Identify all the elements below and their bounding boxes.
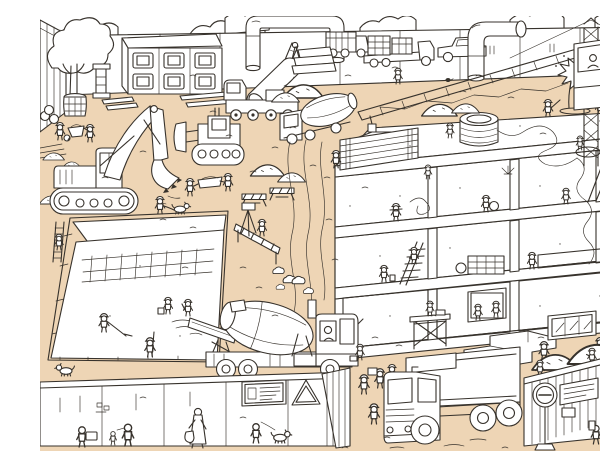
site-office-container bbox=[122, 34, 230, 94]
backpack bbox=[589, 421, 595, 430]
notice-board bbox=[242, 380, 286, 406]
mixer-cab bbox=[316, 314, 363, 366]
scene-canvas bbox=[40, 16, 600, 451]
dump-truck-small bbox=[326, 32, 368, 57]
cable-spool bbox=[460, 113, 498, 147]
concrete-blocks bbox=[292, 47, 336, 74]
window-installers bbox=[468, 288, 506, 322]
construction-site-illustration bbox=[40, 16, 600, 451]
crane-cabin bbox=[574, 38, 600, 110]
